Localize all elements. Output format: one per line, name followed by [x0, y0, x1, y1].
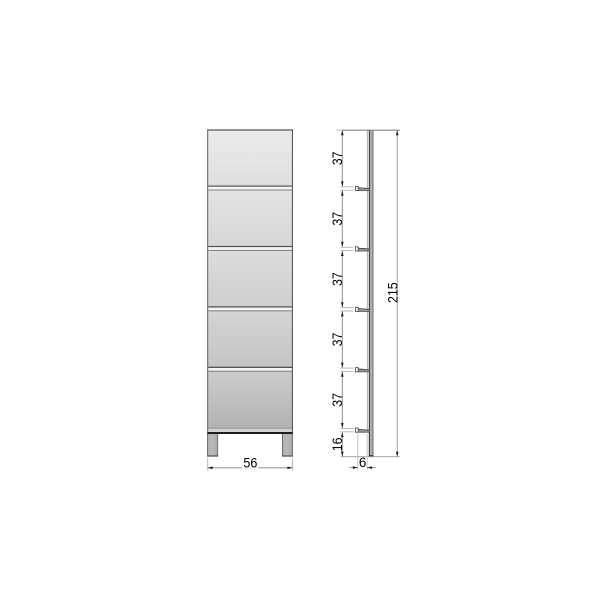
svg-text:37: 37	[330, 333, 345, 347]
svg-text:37: 37	[330, 272, 345, 286]
svg-text:56: 56	[243, 456, 257, 471]
svg-text:215: 215	[385, 282, 400, 303]
svg-text:37: 37	[330, 393, 345, 407]
svg-text:37: 37	[330, 212, 345, 226]
svg-text:16: 16	[330, 438, 345, 452]
svg-text:37: 37	[330, 151, 345, 165]
svg-text:6: 6	[359, 455, 366, 470]
